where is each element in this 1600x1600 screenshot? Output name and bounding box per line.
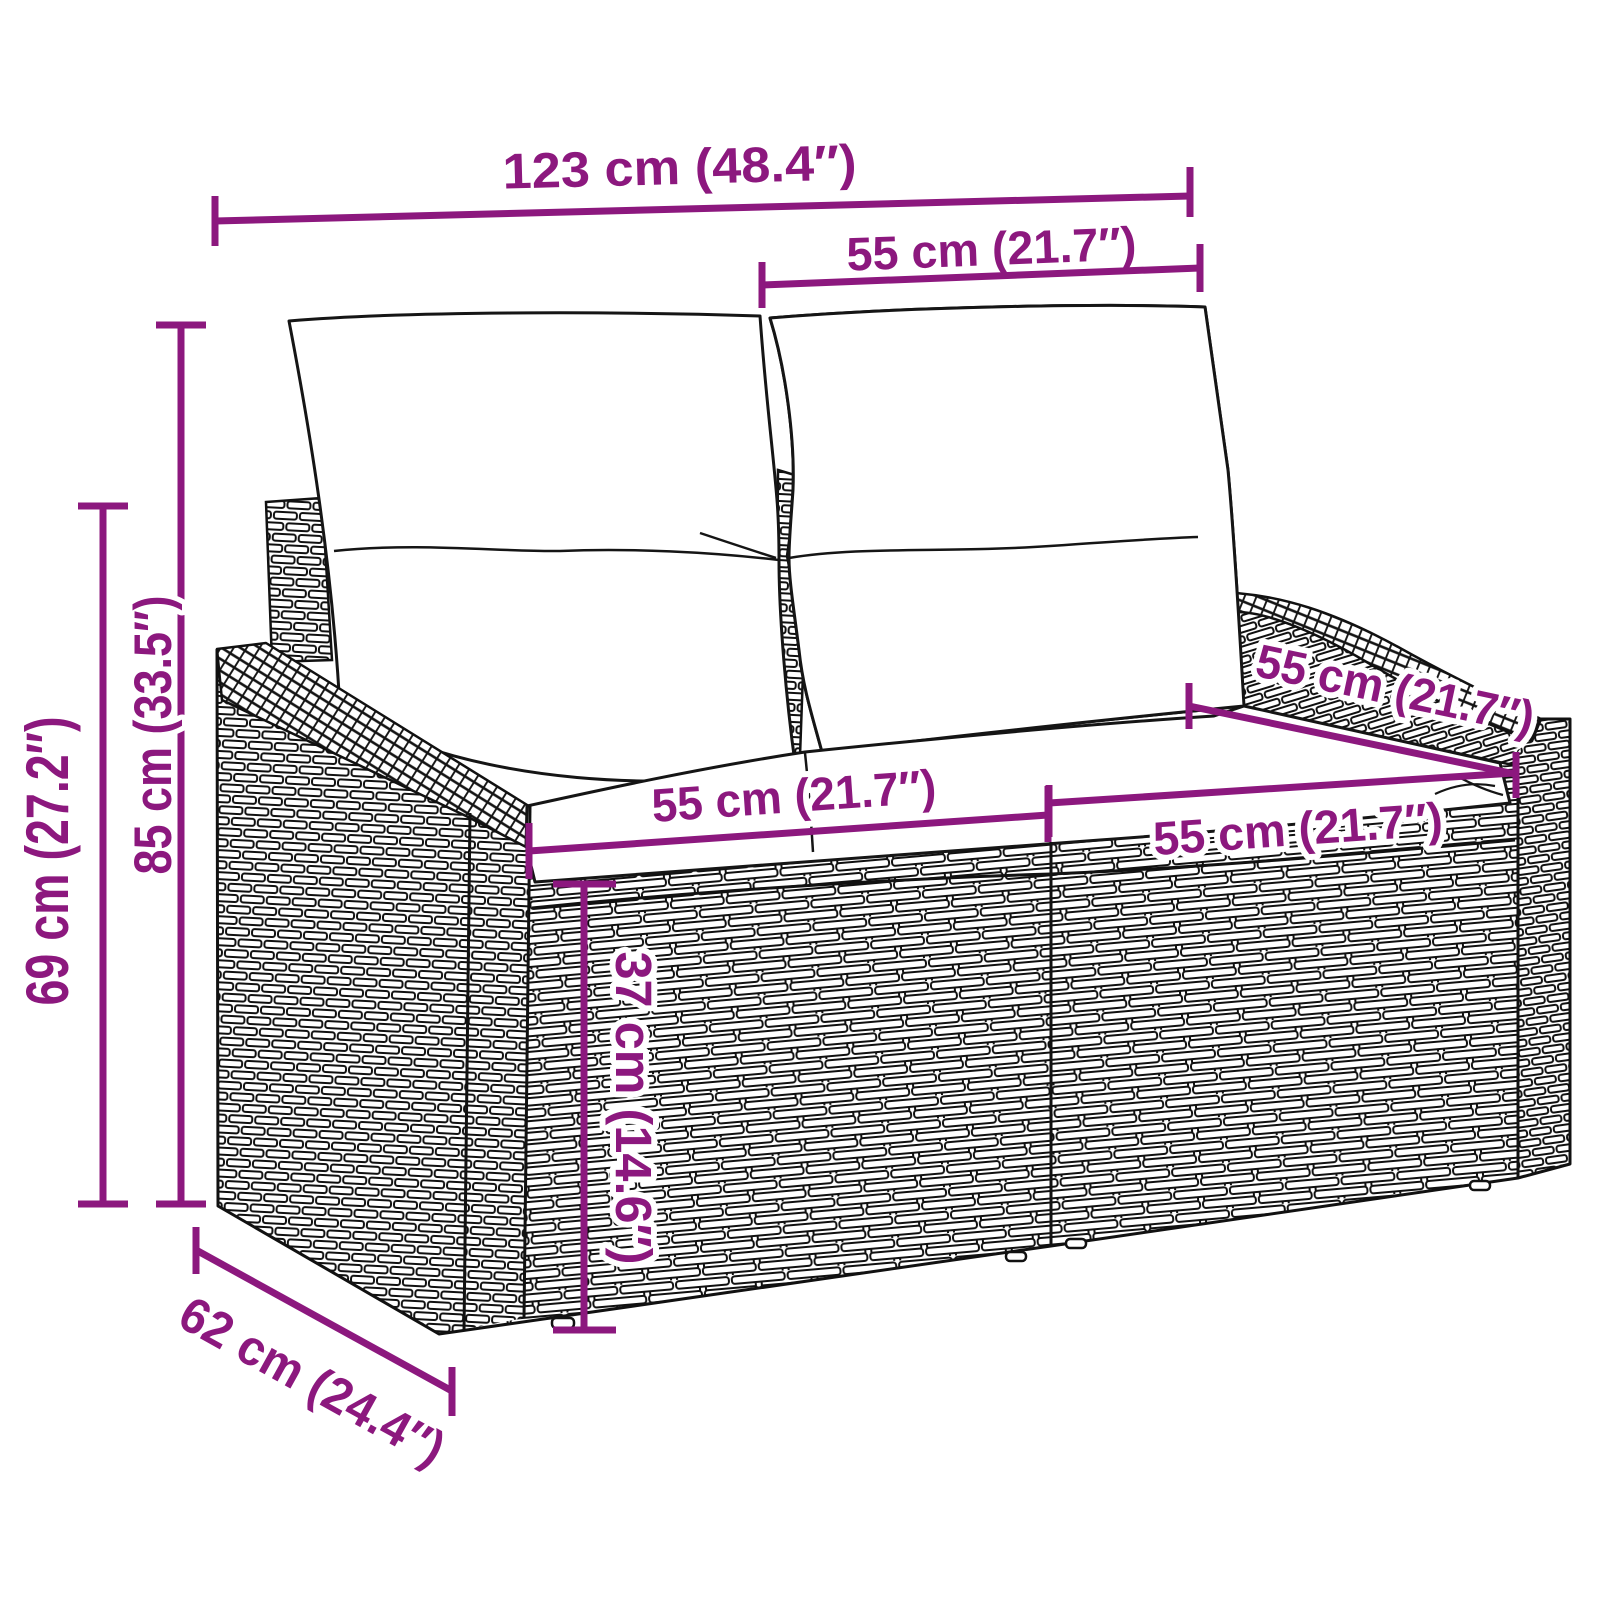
svg-text:85 cm (33.5″): 85 cm (33.5″) bbox=[124, 596, 183, 875]
svg-text:37 cm (14.6″): 37 cm (14.6″) bbox=[605, 952, 662, 1265]
svg-text:69 cm (27.2″): 69 cm (27.2″) bbox=[14, 717, 81, 1006]
svg-text:123 cm (48.4″): 123 cm (48.4″) bbox=[502, 134, 857, 199]
svg-text:55 cm (21.7″): 55 cm (21.7″) bbox=[845, 216, 1137, 280]
